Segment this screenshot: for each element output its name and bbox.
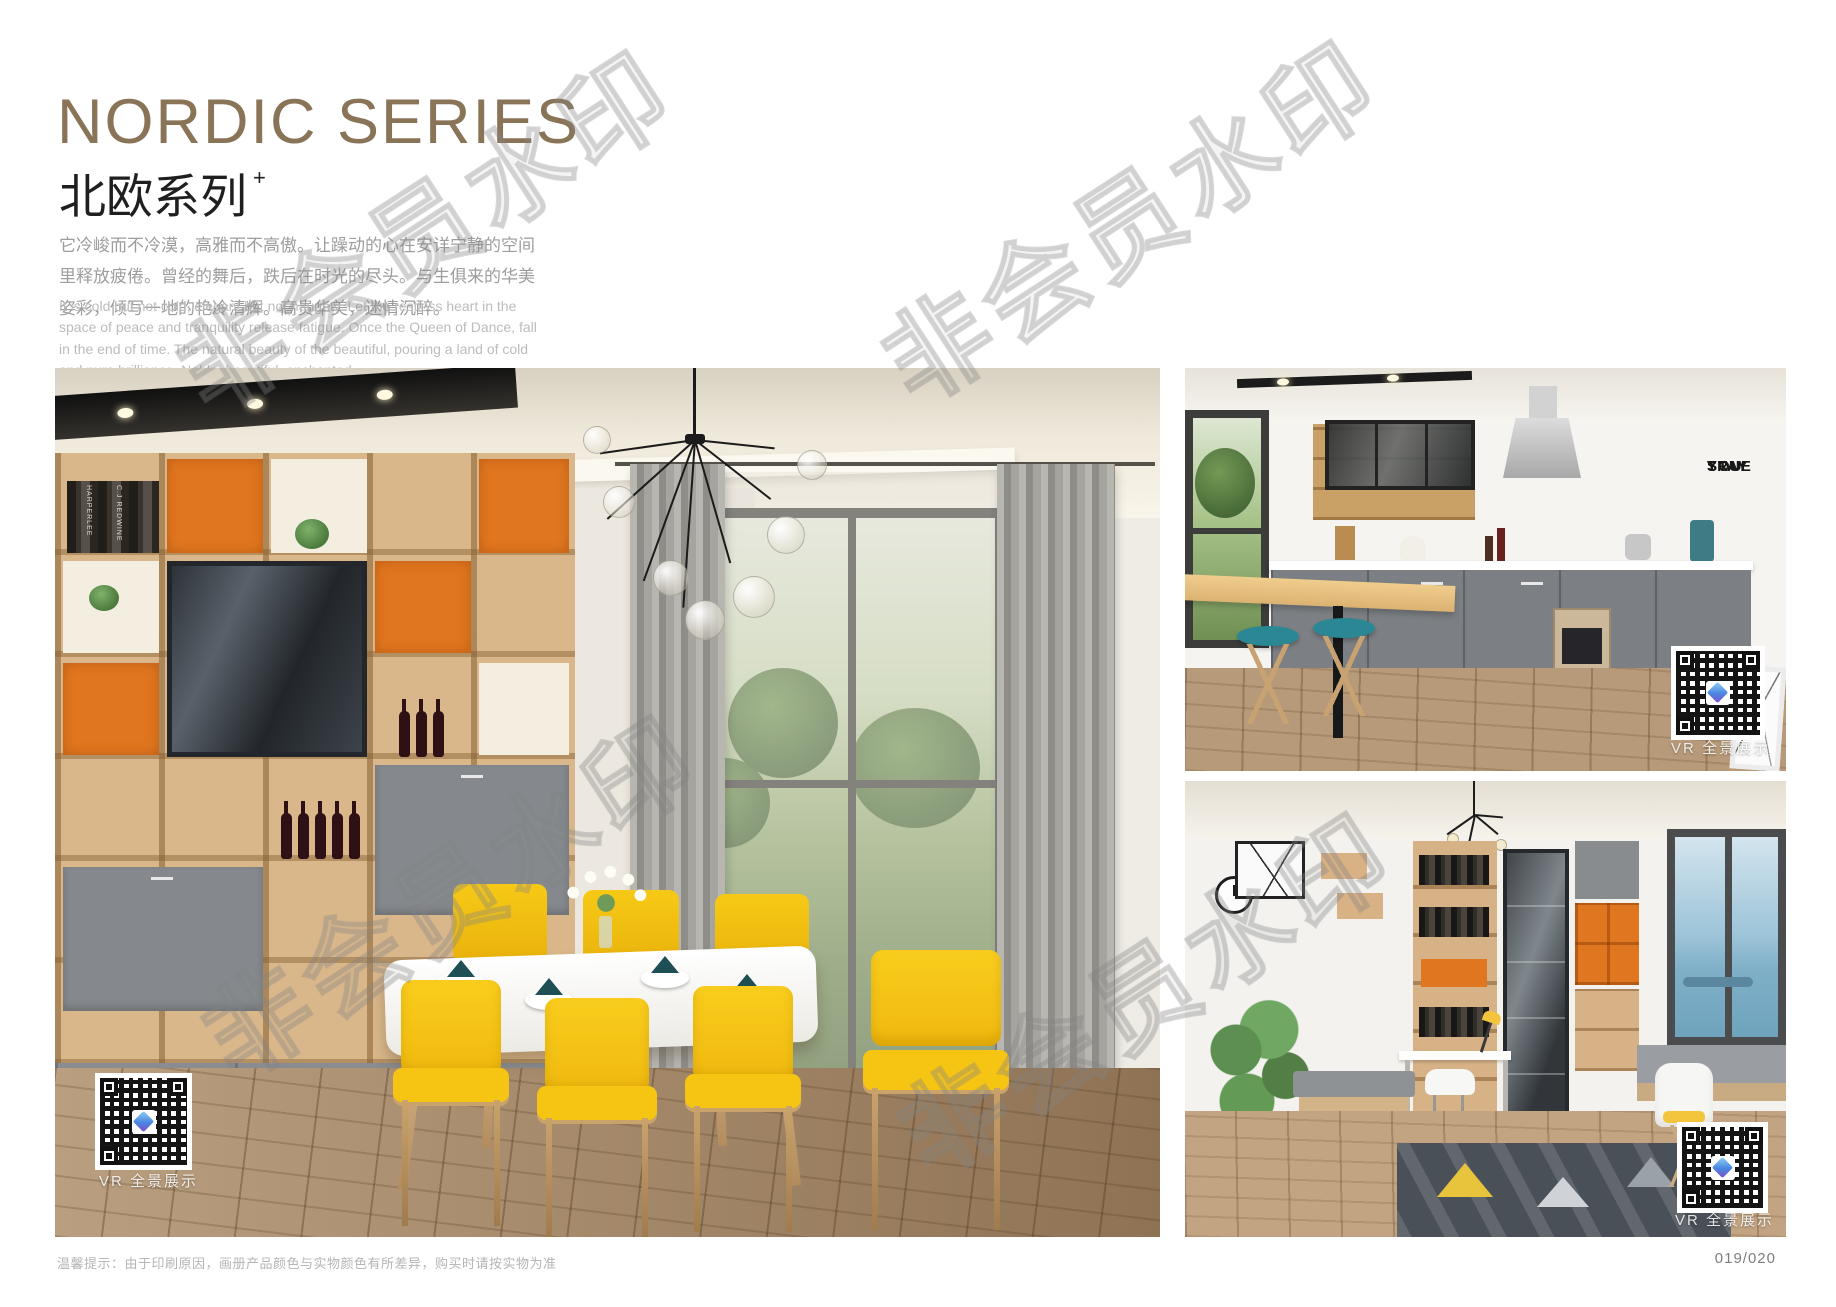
shelf-cell-orange bbox=[479, 459, 569, 553]
dining-chair bbox=[685, 986, 801, 1232]
chair-legs bbox=[546, 1118, 648, 1237]
wine-bottle bbox=[298, 813, 309, 859]
shelf-plant bbox=[89, 585, 119, 611]
qr-eye bbox=[1676, 717, 1694, 735]
book-row bbox=[1419, 907, 1489, 937]
glass-display-cabinet bbox=[167, 561, 367, 757]
page-title-chinese: 北欧系列+ bbox=[59, 158, 266, 227]
vr-panorama-label: VR 全景展示 bbox=[99, 1170, 198, 1191]
bench-cushion bbox=[1293, 1071, 1415, 1097]
shelf-plant bbox=[295, 519, 329, 549]
photo-study-room: VR 全景展示 bbox=[1185, 781, 1786, 1237]
cabinet-handle bbox=[461, 775, 483, 778]
chair-seat bbox=[685, 1074, 801, 1108]
bar-stool-legs bbox=[1317, 636, 1371, 716]
rug-triangle bbox=[1437, 1163, 1493, 1197]
glass-display-cabinet bbox=[1503, 849, 1569, 1129]
wall-art-frame bbox=[1235, 841, 1305, 899]
sea-horizon bbox=[1683, 977, 1753, 987]
shelf-cell-orange bbox=[167, 459, 263, 553]
shelf-cubbies-orange bbox=[1575, 903, 1639, 985]
wine-bottle bbox=[332, 813, 343, 859]
chandelier-globe bbox=[767, 516, 805, 554]
glass-shelf bbox=[1507, 905, 1565, 907]
range-hood-chimney bbox=[1529, 386, 1557, 420]
cutting-board bbox=[1335, 526, 1355, 560]
coffee-machine bbox=[1690, 520, 1714, 562]
cabinet-gray bbox=[1575, 841, 1639, 899]
glass-shelf bbox=[1507, 961, 1565, 963]
chair-legs bbox=[872, 1088, 1000, 1230]
qr-eye bbox=[1676, 651, 1694, 669]
dining-chair bbox=[393, 980, 509, 1226]
chair-back bbox=[693, 986, 793, 1082]
window-mullion bbox=[1725, 837, 1732, 1037]
title-plus-superscript: + bbox=[253, 165, 266, 190]
chair-seat bbox=[537, 1086, 657, 1120]
kettle bbox=[1625, 534, 1651, 560]
cabinet-divider bbox=[1425, 424, 1428, 486]
shelf-cell-orange bbox=[1421, 959, 1487, 987]
bar-stool-seat bbox=[1237, 626, 1299, 646]
cabinet-handle bbox=[151, 877, 173, 880]
qr-logo bbox=[132, 1110, 156, 1134]
chair-legs bbox=[402, 1100, 500, 1226]
ceiling bbox=[1185, 368, 1786, 423]
chandelier-rod bbox=[693, 368, 696, 440]
book-row: HARPERLEE C.J REDWINE bbox=[67, 481, 159, 553]
desk-chair bbox=[1425, 1069, 1475, 1095]
qr-pattern bbox=[1676, 651, 1760, 735]
bar-stool-seat bbox=[1313, 618, 1375, 638]
cabinet-door-gray bbox=[63, 867, 263, 1011]
book-spine-label: HARPERLEE bbox=[85, 485, 92, 536]
photo-dining-room: HARPERLEE C.J REDWINE bbox=[55, 368, 1160, 1237]
counter-bottle bbox=[1485, 536, 1493, 562]
dining-chair bbox=[863, 950, 1009, 1230]
book-spine-label: C.J REDWINE bbox=[115, 485, 122, 542]
shelf-cell-orange bbox=[63, 663, 159, 755]
chair-back bbox=[871, 950, 1001, 1046]
page-number: 019/020 bbox=[1715, 1250, 1776, 1267]
wall-decor-line: YOU bbox=[1707, 458, 1743, 476]
desk bbox=[1399, 1051, 1511, 1060]
window bbox=[1185, 410, 1269, 648]
tree-view bbox=[1195, 448, 1255, 518]
chair-back bbox=[453, 884, 547, 962]
glass-wall-cabinet bbox=[1325, 420, 1475, 490]
qr-logo-cube-icon bbox=[132, 1110, 153, 1131]
qr-eye bbox=[169, 1078, 187, 1096]
built-in-oven bbox=[1553, 608, 1611, 674]
qr-logo bbox=[1706, 681, 1730, 705]
curtain-right bbox=[997, 464, 1115, 1170]
qr-code bbox=[95, 1073, 192, 1170]
wall-shelf-box bbox=[1321, 853, 1367, 879]
qr-eye bbox=[100, 1078, 118, 1096]
shelf-cell-white bbox=[479, 663, 569, 755]
flower-vase bbox=[599, 916, 612, 948]
dining-chair bbox=[537, 998, 657, 1237]
qr-logo-cube-icon bbox=[1707, 682, 1728, 703]
qr-eye bbox=[100, 1147, 118, 1165]
wine-bottle bbox=[399, 711, 410, 757]
shelf-wood-lower bbox=[1575, 989, 1639, 1071]
catalog-page: NORDIC SERIES 北欧系列+ 它冷峻而不冷漠，高雅而不高傲。让躁动的心… bbox=[0, 0, 1836, 1307]
qr-pattern bbox=[1682, 1127, 1763, 1208]
window-sash bbox=[1193, 528, 1261, 534]
vr-panorama-label: VR 全景展示 bbox=[1671, 737, 1770, 758]
countertop bbox=[1269, 561, 1753, 570]
wine-bottle bbox=[349, 813, 360, 859]
chair-seat bbox=[393, 1068, 509, 1102]
qr-code bbox=[1677, 1122, 1768, 1213]
qr-logo-cube-icon bbox=[1711, 1156, 1732, 1177]
wine-bottle bbox=[281, 813, 292, 859]
chandelier-globe bbox=[797, 450, 827, 480]
page-title: NORDIC SERIES bbox=[57, 86, 580, 158]
wall-shelf-box bbox=[1337, 893, 1383, 919]
chandelier-globe bbox=[653, 560, 689, 596]
spotlight-icon bbox=[376, 389, 393, 400]
ceiling-lamp-rod bbox=[1473, 781, 1475, 815]
vr-panorama-label: VR 全景展示 bbox=[1675, 1209, 1774, 1230]
counter-bowl bbox=[1400, 536, 1426, 560]
qr-eye bbox=[1682, 1127, 1700, 1145]
footer-note: 温馨提示：由于印刷原因，画册产品颜色与实物颜色有所差异，购买时请按实物为准 bbox=[57, 1253, 557, 1272]
chandelier-globe bbox=[603, 486, 635, 518]
chair-seat bbox=[863, 1050, 1009, 1090]
counter-bottle bbox=[1497, 528, 1505, 562]
desk-leg bbox=[1503, 1060, 1508, 1112]
chandelier-globe bbox=[685, 600, 725, 640]
cabinet-divider bbox=[1375, 424, 1378, 486]
spotlight-icon bbox=[247, 398, 264, 409]
window bbox=[1667, 829, 1786, 1045]
flower-bouquet bbox=[563, 864, 649, 916]
shelf-cell-orange bbox=[375, 561, 471, 653]
range-hood bbox=[1503, 418, 1581, 478]
wine-bottle bbox=[433, 711, 444, 757]
chair-legs bbox=[694, 1106, 792, 1232]
title-zh-text: 北欧系列 bbox=[59, 170, 247, 223]
book-row bbox=[1419, 1007, 1489, 1037]
chair-back bbox=[401, 980, 501, 1076]
photo-kitchen: STAY TRUE STAY YOU bbox=[1185, 368, 1786, 771]
glass-shelf bbox=[1507, 1073, 1565, 1075]
qr-eye bbox=[1742, 651, 1760, 669]
glass-shelf bbox=[1507, 1017, 1565, 1019]
chair-back bbox=[545, 998, 649, 1094]
qr-logo bbox=[1711, 1156, 1735, 1180]
spotlight-icon bbox=[117, 407, 134, 418]
qr-code bbox=[1671, 646, 1765, 740]
spotlight-icon bbox=[1277, 378, 1289, 385]
spotlight-icon bbox=[1387, 374, 1399, 381]
qr-eye bbox=[1682, 1190, 1700, 1208]
wine-bottle bbox=[315, 813, 326, 859]
chandelier-globe bbox=[583, 426, 611, 454]
qr-pattern bbox=[100, 1078, 187, 1165]
wine-bottle bbox=[416, 711, 427, 757]
bar-stool-legs bbox=[1241, 644, 1295, 724]
rug-triangle bbox=[1537, 1177, 1589, 1207]
chandelier-globe bbox=[733, 576, 775, 618]
cabinet-handle bbox=[1521, 582, 1543, 585]
book-row bbox=[1419, 855, 1489, 885]
qr-eye bbox=[1745, 1127, 1763, 1145]
